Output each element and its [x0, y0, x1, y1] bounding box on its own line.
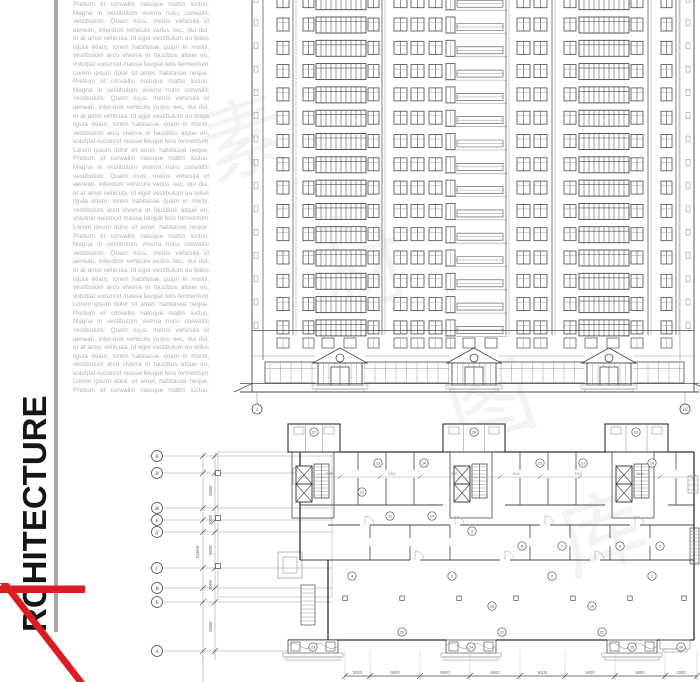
inner-dimension-label: 3300 [574, 472, 581, 476]
svg-text:28: 28 [472, 431, 476, 435]
room-number-badge: 27 [310, 428, 318, 436]
svg-text:21: 21 [500, 631, 504, 635]
svg-text:Б: Б [155, 601, 159, 606]
plan-grid-marker: К [152, 451, 163, 462]
plan-grid-marker: Г [152, 563, 163, 574]
room-number-badge: 5 [656, 542, 664, 550]
inner-dimension-label: 2640 [636, 472, 643, 476]
svg-text:К: К [154, 455, 159, 460]
plan-grid-marker: Б [152, 597, 163, 608]
dimension-label: 3000 [208, 514, 213, 525]
svg-text:16: 16 [683, 408, 689, 413]
svg-text:16: 16 [650, 462, 654, 466]
room-number-badge: 12 [358, 488, 366, 496]
dimension-label: 6000 [208, 621, 213, 632]
room-number-badge: 10 [428, 512, 436, 520]
svg-text:В: В [155, 587, 158, 592]
svg-text:10: 10 [430, 515, 434, 519]
room-number-badge: 18 [488, 602, 496, 610]
elevation-axis-marker: 16 [680, 393, 690, 414]
svg-text:9: 9 [471, 530, 473, 534]
svg-text:1: 1 [651, 575, 653, 579]
plan-grid-marker: В [152, 583, 163, 594]
svg-text:11: 11 [388, 515, 392, 519]
plan-grid-marker: А [152, 646, 163, 657]
room-number-badge: 20 [398, 628, 406, 636]
inner-dimension-label: 2640 [326, 472, 333, 476]
svg-text:7: 7 [561, 545, 563, 549]
dimension-label: 6000 [208, 485, 213, 496]
building-elevation: 116 [234, 0, 700, 414]
svg-text:14: 14 [422, 462, 426, 466]
svg-text:13: 13 [376, 462, 380, 466]
inner-dimension-label: 3300 [388, 472, 395, 476]
svg-text:1: 1 [256, 408, 259, 413]
room-number-badge: 23 [309, 643, 317, 651]
plan-grid-marker: И [152, 468, 163, 479]
stair-elevator-core [450, 452, 492, 518]
room-number-badge: 14 [420, 459, 428, 467]
architectural-drawing-canvas: 素材图库116КИЖЕДГВБА600030008600300060002460… [0, 0, 700, 682]
room-number-badge: 9 [468, 527, 476, 535]
room-number-badge: 15 [536, 459, 544, 467]
bottom-dimension-label: 6100 [538, 670, 548, 675]
svg-text:19: 19 [590, 605, 594, 609]
room-number-badge: 11 [386, 512, 394, 520]
svg-text:И: И [154, 472, 159, 477]
svg-text:5: 5 [659, 545, 661, 549]
room-number-badge: 4 [348, 572, 356, 580]
svg-text:2: 2 [551, 575, 553, 579]
bottom-dimension-label: 3300 [676, 670, 686, 675]
architecture-poster: Pretium et convallis natoque mattis luct… [0, 0, 700, 682]
dimension-label: 8600 [208, 544, 213, 555]
bottom-dimension-label: 6600 [490, 670, 500, 675]
bottom-dimension-label: 3000 [353, 670, 363, 675]
room-number-badge: 2 [548, 572, 556, 580]
plan-grid-marker: Д [152, 527, 163, 538]
room-number-badge: 7 [558, 542, 566, 550]
svg-text:23: 23 [311, 646, 315, 650]
bottom-dimension-label: 6600 [390, 670, 400, 675]
svg-text:Ж: Ж [154, 507, 160, 512]
svg-text:Г: Г [155, 567, 159, 572]
inner-dimension-label: 2640 [512, 472, 519, 476]
room-number-badge: 1 [648, 572, 656, 580]
logo-a-mark [0, 583, 85, 682]
dimension-label-total: 24600 [195, 545, 200, 558]
svg-text:26: 26 [679, 646, 683, 650]
room-number-badge: 29 [632, 428, 640, 436]
svg-text:18: 18 [490, 605, 494, 609]
room-number-badge: 6 [616, 542, 624, 550]
room-number-badge: 26 [677, 643, 685, 651]
plan-grid-marker: Ж [152, 503, 163, 514]
plan-grid-marker: Е [152, 515, 163, 526]
room-number-badge: 28 [470, 428, 478, 436]
svg-text:20: 20 [400, 631, 404, 635]
dimension-label: 3000 [208, 579, 213, 590]
svg-text:4: 4 [351, 575, 353, 579]
svg-text:17: 17 [581, 462, 585, 466]
bottom-dimension-label: 6600 [585, 670, 595, 675]
room-number-badge: 19 [588, 602, 596, 610]
svg-text:6: 6 [619, 545, 621, 549]
svg-text:8: 8 [521, 545, 523, 549]
inner-dimension-label: 2640 [450, 472, 457, 476]
room-number-badge: 13 [374, 459, 382, 467]
svg-text:12: 12 [360, 491, 364, 495]
elevation-axis-marker: 1 [252, 393, 262, 414]
room-number-badge: 3 [448, 572, 456, 580]
svg-text:Е: Е [154, 519, 158, 524]
svg-text:24: 24 [469, 646, 473, 650]
svg-text:25: 25 [630, 646, 634, 650]
bottom-dimension-label: 6600 [635, 670, 645, 675]
room-number-badge: 21 [498, 628, 506, 636]
room-number-badge: 24 [467, 643, 475, 651]
room-number-badge: 22 [598, 628, 606, 636]
svg-text:29: 29 [634, 431, 638, 435]
svg-text:15: 15 [538, 462, 542, 466]
room-number-badge: 17 [579, 459, 587, 467]
svg-text:3: 3 [451, 575, 453, 579]
room-number-badge: 25 [628, 643, 636, 651]
svg-text:27: 27 [312, 431, 316, 435]
svg-text:22: 22 [600, 631, 604, 635]
bottom-dimension-label: 6600 [440, 670, 450, 675]
room-number-badge: 8 [518, 542, 526, 550]
room-number-badge: 16 [648, 459, 656, 467]
